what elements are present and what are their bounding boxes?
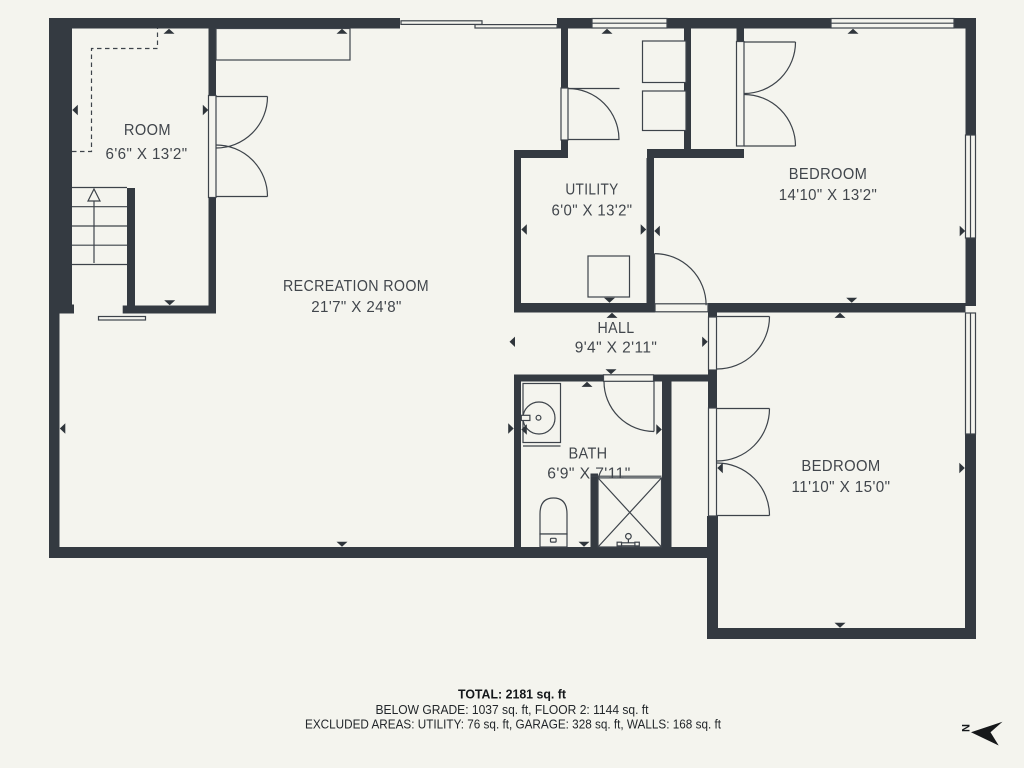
svg-text:BEDROOM: BEDROOM bbox=[801, 458, 880, 475]
svg-text:TOTAL: 2181 sq. ft: TOTAL: 2181 sq. ft bbox=[458, 686, 567, 701]
svg-text:9'4" X 2'11": 9'4" X 2'11" bbox=[575, 339, 658, 356]
svg-text:RECREATION ROOM: RECREATION ROOM bbox=[283, 278, 429, 295]
svg-text:6'9" X 7'11": 6'9" X 7'11" bbox=[547, 466, 631, 483]
svg-text:UTILITY: UTILITY bbox=[565, 182, 618, 199]
svg-text:21'7" X 24'8": 21'7" X 24'8" bbox=[311, 299, 402, 316]
svg-text:BATH: BATH bbox=[568, 446, 607, 463]
svg-text:ROOM: ROOM bbox=[124, 122, 171, 139]
svg-text:EXCLUDED AREAS: UTILITY: 76 sq: EXCLUDED AREAS: UTILITY: 76 sq. ft, GARA… bbox=[305, 717, 721, 732]
svg-text:HALL: HALL bbox=[598, 320, 635, 337]
svg-text:6'6" X 13'2": 6'6" X 13'2" bbox=[106, 146, 188, 163]
svg-text:14'10" X 13'2": 14'10" X 13'2" bbox=[779, 187, 878, 204]
svg-text:6'0" X 13'2": 6'0" X 13'2" bbox=[552, 203, 633, 220]
svg-text:N: N bbox=[961, 724, 973, 732]
svg-text:BELOW GRADE: 1037 sq. ft, FLOO: BELOW GRADE: 1037 sq. ft, FLOOR 2: 1144 … bbox=[376, 702, 649, 717]
svg-text:BEDROOM: BEDROOM bbox=[789, 166, 868, 183]
svg-text:11'10" X 15'0": 11'10" X 15'0" bbox=[792, 479, 891, 496]
